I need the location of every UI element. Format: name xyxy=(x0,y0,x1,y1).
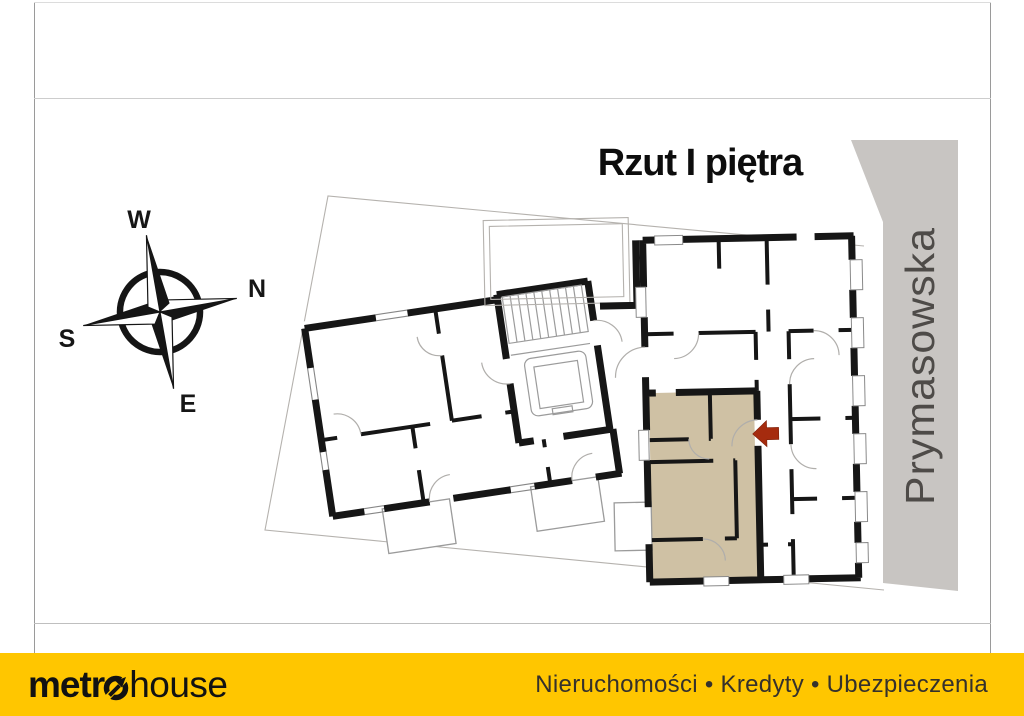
compass-north-label: N xyxy=(248,275,266,303)
footer-bar: metr house Nieruchomości • Kredyty • Ube… xyxy=(0,653,1024,716)
listing-floorplan-image: Prymasowska xyxy=(0,0,1024,716)
compass-west-label: W xyxy=(127,206,151,234)
logo-arrow-o-icon xyxy=(103,673,130,701)
highlighted-apartment xyxy=(649,391,758,579)
footer-tagline: Nieruchomości • Kredyty • Ubezpieczenia xyxy=(535,653,988,716)
logo-text-bold: metr xyxy=(28,664,104,706)
street-band: Prymasowska xyxy=(851,140,958,591)
compass-east-label: E xyxy=(180,390,197,418)
compass-rose: W N S E xyxy=(59,206,266,418)
page-title: Rzut I piętra xyxy=(566,142,834,185)
street-name-label: Prymasowska xyxy=(897,227,943,505)
apartment-balcony xyxy=(614,502,652,551)
logo-text-light: house xyxy=(129,664,227,706)
floor-plan: Prymasowska xyxy=(0,0,1024,716)
left-wing xyxy=(301,275,648,561)
metrohouse-logo: metr house xyxy=(28,653,228,716)
compass-south-label: S xyxy=(59,325,76,353)
